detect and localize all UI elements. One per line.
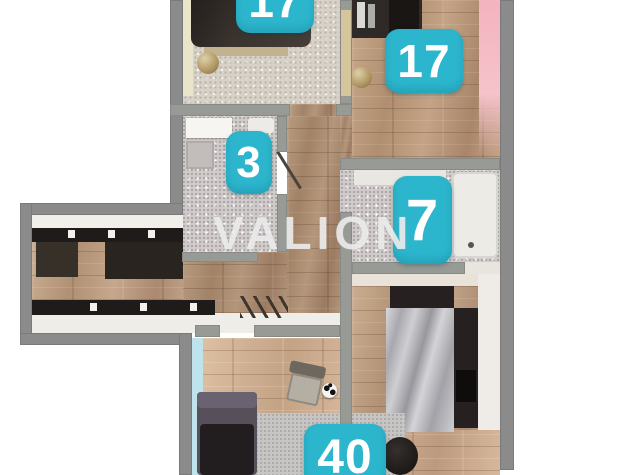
armchair-seat <box>286 372 323 406</box>
cabinet-handle <box>140 303 147 311</box>
counter-dark-side <box>454 308 478 428</box>
hall-bench <box>240 296 288 318</box>
cooktop <box>456 370 476 402</box>
kitchen-right-pass-floor <box>465 262 500 274</box>
area-badge-bedroom-right: 17 <box>385 29 463 93</box>
floorplan-image: VALION 17 17 3 7 40 <box>0 0 630 475</box>
bathtub <box>452 172 498 258</box>
drain <box>468 242 474 248</box>
decor-sphere <box>351 67 372 88</box>
area-badge-label: 17 <box>397 34 450 88</box>
wall-kitchen-left <box>20 203 32 345</box>
wall-living-top-a <box>195 325 220 337</box>
area-badge-living: 40 <box>304 424 386 475</box>
area-badge-bedroom-top: 17 <box>236 0 314 33</box>
wall-kitchen-bottom <box>20 333 192 345</box>
wall-living-left <box>179 333 192 475</box>
wall-living-top-b <box>254 325 340 337</box>
kitchen-counter-top <box>32 228 183 242</box>
kitchen-right-ledge <box>352 274 478 286</box>
cabinet-handle <box>90 303 97 311</box>
nightstand-sphere <box>197 52 219 74</box>
area-badge-label: 40 <box>317 430 372 475</box>
kitchen-counter-bottom <box>32 300 215 315</box>
hanging-clothes <box>357 2 365 28</box>
cabinet-handle <box>68 230 75 238</box>
fridge <box>105 242 183 279</box>
bedroom-right-doorway-floor <box>340 116 352 158</box>
corridor-doorway-floor <box>290 104 336 116</box>
cabinet-handle <box>148 230 155 238</box>
open-door <box>341 10 351 96</box>
area-badge-bathroom-small: 3 <box>226 131 272 194</box>
wall-bathroom-small-right-a <box>277 116 287 152</box>
round-chair <box>382 437 418 475</box>
wall-bathroom-large-top <box>340 158 500 170</box>
wall-bedroom-left-bottom <box>170 104 290 116</box>
wall-kitchen-top <box>20 203 183 215</box>
watermark-text: VALION <box>213 206 413 260</box>
bed-bench <box>204 47 288 56</box>
sofa-backrest <box>197 392 257 408</box>
hanging-clothes <box>368 4 375 28</box>
bedroom-right-pink-wall <box>479 0 500 156</box>
area-badge-label: 3 <box>236 138 261 188</box>
wall-right-outer <box>500 0 514 470</box>
soccer-ball <box>322 383 337 398</box>
area-badge-label: 17 <box>248 0 301 28</box>
cabinet-handle <box>190 303 197 311</box>
kitchen-right-light-strip <box>478 274 500 430</box>
washing-machine <box>186 141 214 169</box>
wall-bedroom-left-bottom-stub <box>336 104 352 116</box>
sofa-cushions <box>200 424 254 475</box>
kitchen-appliance <box>36 242 78 277</box>
sink-counter <box>186 118 232 138</box>
cabinet-handle <box>108 230 115 238</box>
counter-dark-top <box>390 286 454 310</box>
